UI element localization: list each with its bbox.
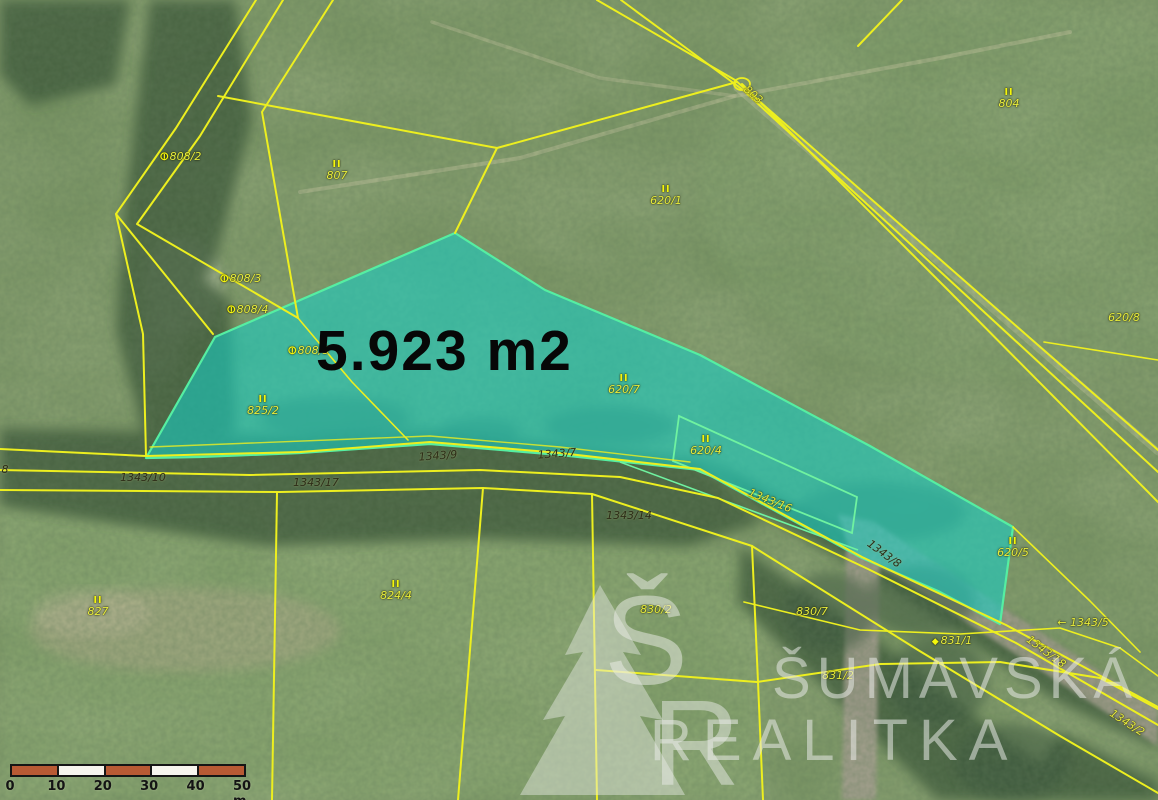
aerial-photo-and-boundaries — [0, 0, 1158, 800]
scale-label-20: 20 — [94, 779, 112, 794]
scale-bar: 01020304050 m — [10, 764, 246, 798]
scale-label-0: 0 — [5, 779, 14, 794]
scale-bar-segment — [199, 766, 244, 775]
scale-bar-segment — [106, 766, 153, 775]
scale-bar-segment — [12, 766, 59, 775]
scale-bar-segments — [10, 764, 246, 777]
scale-bar-segment — [152, 766, 199, 775]
cadastral-map-image: ⊖808/2II807II620/1II804803620/8⊖808/3⊖80… — [0, 0, 1158, 800]
scale-label-30: 30 — [140, 779, 158, 794]
scale-label-50-m: 50 m — [233, 779, 251, 800]
scale-bar-segment — [59, 766, 106, 775]
area-size-label: 5.923 m2 — [316, 318, 573, 384]
scale-label-10: 10 — [47, 779, 65, 794]
scale-label-40: 40 — [187, 779, 205, 794]
